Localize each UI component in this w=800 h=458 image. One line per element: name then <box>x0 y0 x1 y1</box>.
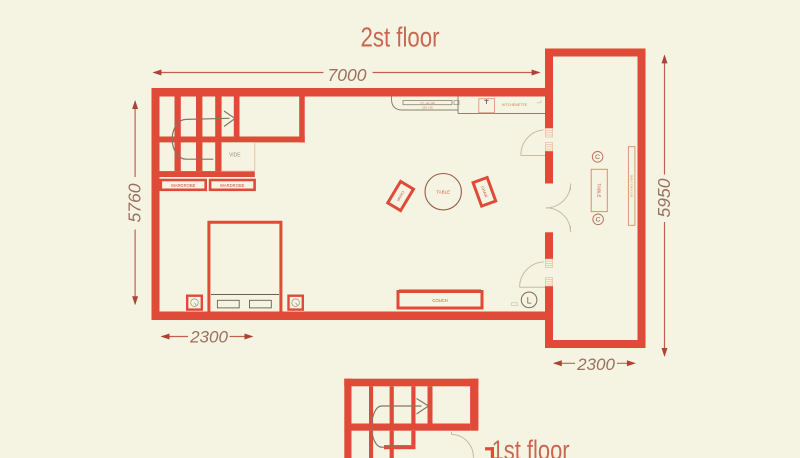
svg-text:WARDROBE: WARDROBE <box>171 183 196 188</box>
svg-text:WARDROBE: WARDROBE <box>220 183 245 188</box>
svg-text:2300: 2300 <box>576 355 615 374</box>
svg-text:2st floor: 2st floor <box>361 21 440 52</box>
svg-text:5760: 5760 <box>125 183 145 222</box>
svg-text:TABLE: TABLE <box>436 190 450 195</box>
svg-text:L: L <box>527 295 532 305</box>
svg-text:TABLE: TABLE <box>597 184 602 198</box>
svg-text:SHELF 2.40 X 0.35: SHELF 2.40 X 0.35 <box>630 175 634 198</box>
svg-text:VIDE: VIDE <box>229 152 241 158</box>
svg-text:KITCHENETTE: KITCHENETTE <box>502 103 528 107</box>
svg-text:150 x 50: 150 x 50 <box>422 106 433 110</box>
svg-text:C: C <box>596 217 601 224</box>
svg-text:7000: 7000 <box>328 65 367 85</box>
svg-text:2300: 2300 <box>189 327 228 346</box>
svg-text:1st floor: 1st floor <box>492 435 570 458</box>
svg-text:TV - AV 120: TV - AV 120 <box>420 101 435 105</box>
svg-text:C: C <box>595 154 600 161</box>
svg-text:5950: 5950 <box>654 178 674 217</box>
svg-text:COUCH: COUCH <box>432 298 447 303</box>
